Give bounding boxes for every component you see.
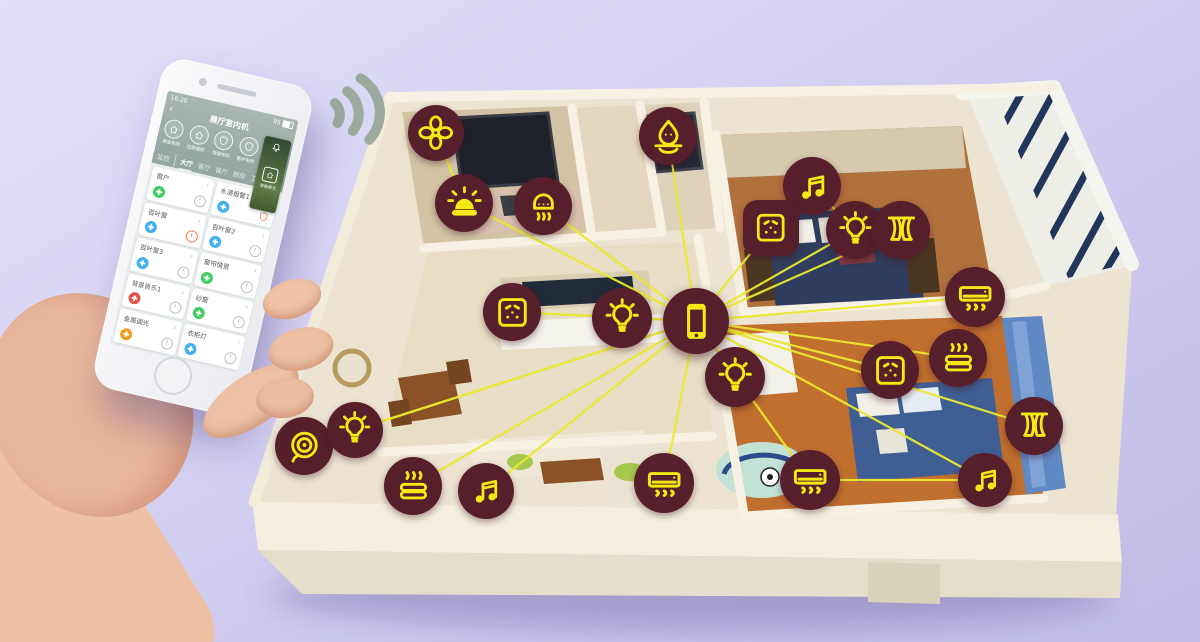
mode-label: 回家撤防 bbox=[186, 144, 205, 154]
device-type-icon bbox=[135, 256, 149, 270]
bulb-hall-bulb-icon[interactable] bbox=[592, 288, 652, 348]
power-toggle[interactable] bbox=[223, 351, 237, 365]
music-br2-music-icon[interactable] bbox=[958, 453, 1012, 507]
card-title: 百叶窗3 bbox=[139, 241, 164, 256]
bell-icon[interactable] bbox=[269, 140, 285, 156]
fan-fan-icon[interactable] bbox=[408, 105, 464, 161]
card-title: 纱窗 bbox=[195, 292, 210, 305]
device-type-icon bbox=[216, 199, 230, 213]
power-toggle[interactable] bbox=[248, 244, 262, 258]
card-title: 背景音乐1 bbox=[131, 277, 163, 294]
card-title: 窗帘情景 bbox=[203, 256, 231, 272]
front-camera-dot bbox=[198, 77, 208, 87]
power-toggle[interactable] bbox=[159, 336, 173, 350]
chevron-right-icon: › bbox=[244, 302, 249, 311]
curtain-br1-curtain-icon[interactable] bbox=[872, 201, 930, 259]
battery-icon bbox=[282, 120, 294, 129]
curtain-br2-curtain-icon[interactable] bbox=[1005, 397, 1063, 455]
home-icon bbox=[163, 118, 186, 141]
shield-icon bbox=[237, 135, 260, 158]
socket-br1-socket-icon[interactable] bbox=[743, 200, 799, 256]
device-type-icon bbox=[127, 291, 141, 305]
socket-br2-socket-icon[interactable] bbox=[861, 341, 919, 399]
water-water-icon[interactable] bbox=[639, 107, 697, 165]
hood-hood-icon[interactable] bbox=[514, 177, 572, 235]
earpiece-speaker bbox=[217, 83, 257, 97]
camera-camera-icon[interactable] bbox=[275, 417, 333, 475]
device-type-icon bbox=[191, 306, 205, 320]
chevron-right-icon: › bbox=[205, 180, 210, 189]
device-type-icon bbox=[207, 235, 221, 249]
chevron-right-icon: › bbox=[261, 231, 266, 240]
hub-phone-icon[interactable] bbox=[663, 288, 729, 354]
card-title: 窗户 bbox=[156, 170, 171, 183]
heater-br2-heater-icon[interactable] bbox=[929, 329, 987, 387]
music-living-music-icon[interactable] bbox=[458, 463, 514, 519]
chevron-right-icon: › bbox=[197, 216, 202, 225]
device-type-icon bbox=[119, 327, 133, 341]
chevron-right-icon: › bbox=[236, 338, 241, 347]
mode-label: 看护布防 bbox=[236, 155, 255, 165]
chevron-right-icon: › bbox=[172, 323, 177, 332]
power-toggle[interactable] bbox=[231, 315, 245, 329]
power-toggle[interactable] bbox=[168, 301, 182, 315]
bulb-dining-bulb-icon[interactable] bbox=[327, 402, 383, 458]
heater-living-heater-icon[interactable] bbox=[384, 457, 442, 515]
card-title: 衣柜灯 bbox=[187, 328, 208, 342]
ac-br1-ac-icon[interactable] bbox=[945, 267, 1005, 327]
ac-living-ac-icon[interactable] bbox=[634, 453, 694, 513]
device-type-icon bbox=[183, 342, 197, 356]
siren-siren-icon[interactable] bbox=[435, 174, 493, 232]
battery-percent: 95 bbox=[272, 118, 281, 127]
power-toggle[interactable] bbox=[184, 229, 198, 243]
mode-label: 就寝布防 bbox=[211, 149, 230, 159]
shield-icon bbox=[213, 129, 236, 152]
chevron-right-icon: › bbox=[252, 267, 257, 276]
power-toggle[interactable] bbox=[240, 280, 254, 294]
ac-kids-ac-icon[interactable] bbox=[780, 450, 840, 510]
power-toggle[interactable] bbox=[176, 265, 190, 279]
card-title: 百叶窗2 bbox=[211, 221, 236, 236]
chevron-right-icon: › bbox=[189, 252, 194, 261]
socket-hall-socket-icon[interactable] bbox=[483, 283, 541, 341]
device-type-icon bbox=[144, 220, 158, 234]
smart-home-promo-scene: 16:20 95 ‹ 展厅室内机 离家布防 回家撤防 就寝布防 bbox=[0, 0, 1200, 642]
bulb-br2-bulb-icon[interactable] bbox=[705, 347, 765, 407]
home-mode-icon[interactable] bbox=[261, 166, 279, 184]
card-title: 金属调光 bbox=[123, 313, 151, 329]
chevron-right-icon: › bbox=[180, 287, 185, 296]
wifi-signal-icon bbox=[315, 53, 401, 166]
mode-label: 离家布防 bbox=[162, 138, 181, 148]
card-title: 水浸报警1 bbox=[219, 185, 251, 202]
device-type-icon bbox=[152, 184, 166, 198]
power-toggle[interactable] bbox=[192, 194, 206, 208]
banner-label: 智能模式 bbox=[259, 183, 276, 192]
card-title: 百叶窗 bbox=[147, 206, 168, 220]
home-icon bbox=[188, 124, 211, 147]
device-type-icon bbox=[199, 270, 213, 284]
